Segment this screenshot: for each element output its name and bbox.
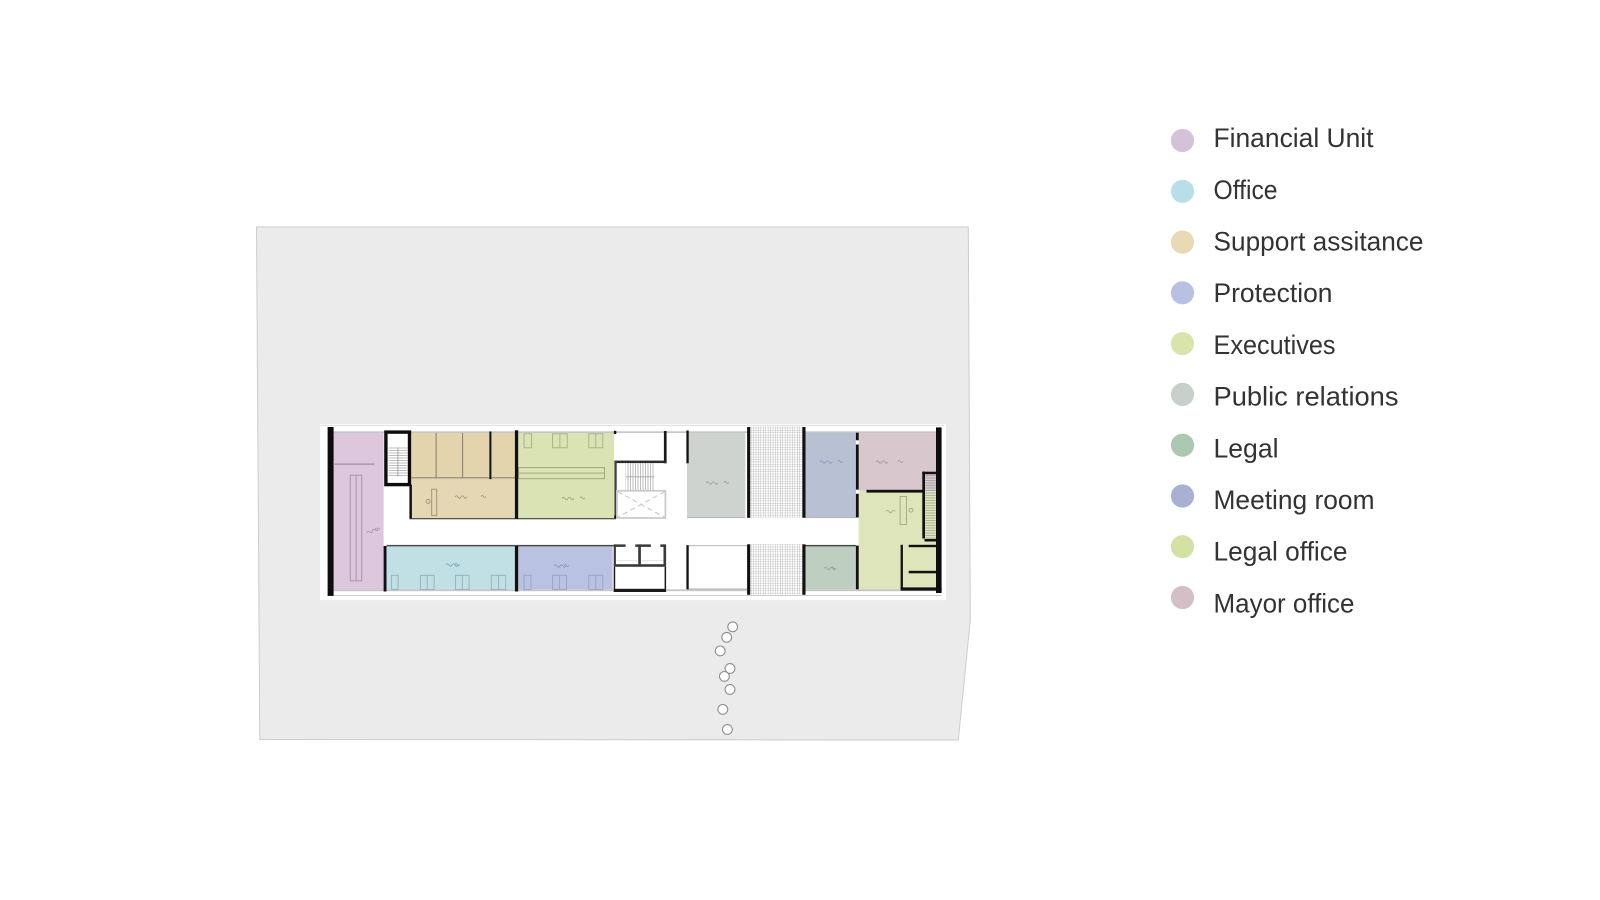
svg-text:Support assitance: Support assitance xyxy=(1214,227,1424,257)
svg-text:Protection: Protection xyxy=(1214,278,1333,308)
svg-text:Public relations: Public relations xyxy=(1214,382,1399,412)
svg-text:Financial Unit: Financial Unit xyxy=(1214,123,1375,153)
svg-text:Office: Office xyxy=(1214,175,1278,205)
svg-text:Mayor office: Mayor office xyxy=(1214,588,1355,618)
svg-text:Meeting room: Meeting room xyxy=(1214,485,1375,515)
svg-text:Legal: Legal xyxy=(1214,433,1279,463)
svg-text:Executives: Executives xyxy=(1214,330,1336,360)
svg-text:Legal office: Legal office xyxy=(1214,537,1348,567)
